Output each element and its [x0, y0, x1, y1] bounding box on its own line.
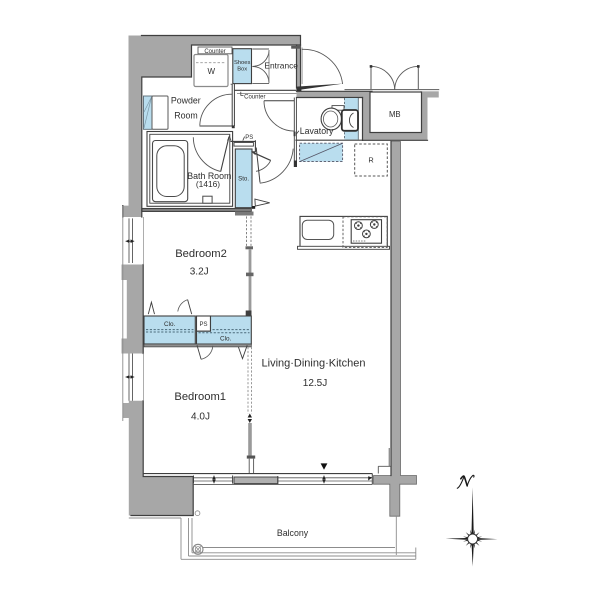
svg-text:PS: PS	[199, 322, 207, 328]
svg-text:Clo.: Clo.	[220, 336, 232, 343]
svg-text:Bedroom1: Bedroom1	[174, 391, 226, 403]
svg-text:Entrance: Entrance	[264, 61, 298, 71]
svg-text:R: R	[368, 156, 373, 165]
svg-text:Box: Box	[237, 66, 247, 72]
svg-text:12.5J: 12.5J	[303, 378, 327, 389]
svg-text:Bedroom2: Bedroom2	[175, 248, 227, 260]
svg-text:(1416): (1416)	[196, 179, 220, 189]
svg-text:Room: Room	[174, 110, 197, 120]
svg-text:Clo.: Clo.	[164, 321, 176, 328]
svg-text:Sto.: Sto.	[238, 175, 249, 182]
svg-text:4.0J: 4.0J	[191, 412, 210, 423]
svg-text:Counter: Counter	[244, 94, 265, 100]
svg-text:3.2J: 3.2J	[190, 267, 209, 278]
svg-text:Powder: Powder	[171, 95, 201, 105]
svg-text:PS: PS	[245, 135, 253, 141]
svg-text:MB: MB	[389, 110, 401, 119]
svg-text:W: W	[208, 67, 216, 76]
svg-text:Balcony: Balcony	[277, 528, 309, 538]
svg-text:Living·Dining·Kitchen: Living·Dining·Kitchen	[262, 358, 366, 370]
svg-text:Lavatory: Lavatory	[300, 126, 334, 136]
svg-text:Shoes: Shoes	[234, 60, 251, 66]
svg-text:Counter: Counter	[204, 49, 225, 55]
